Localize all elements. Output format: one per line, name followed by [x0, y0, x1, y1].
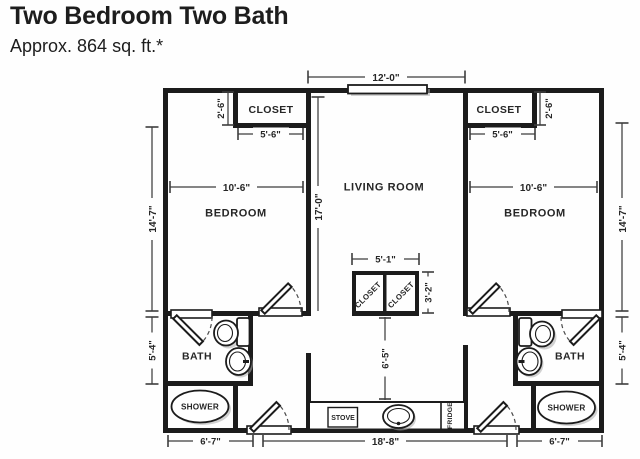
dim-closet-left-width: 5'-6" — [238, 128, 303, 141]
dim-living-room-depth: 17'-0" — [312, 97, 325, 311]
living-room-label: LIVING ROOM — [344, 182, 425, 194]
faucet-dot — [397, 422, 401, 426]
dim-closet-left-depth: 2'-6" — [216, 92, 234, 125]
svg-text:10'-6": 10'-6" — [223, 183, 250, 194]
sink-right — [517, 348, 544, 378]
svg-text:18'-8": 18'-8" — [372, 437, 399, 448]
svg-text:14'-7": 14'-7" — [618, 205, 629, 232]
entry-door-right — [474, 402, 519, 434]
svg-text:3'-2": 3'-2" — [424, 282, 435, 303]
entry-door-left — [247, 402, 291, 434]
bath-right-door — [561, 310, 602, 345]
closet-left-label: CLOSET — [249, 104, 294, 116]
toilet-right — [519, 318, 557, 350]
svg-text:5'-6": 5'-6" — [492, 130, 513, 141]
svg-text:6'-5": 6'-5" — [381, 348, 392, 369]
dim-closet-right-width: 5'-6" — [470, 128, 535, 141]
dim-bedroom-left-width: 10'-6" — [170, 181, 303, 194]
svg-text:17'-0": 17'-0" — [314, 193, 325, 220]
shower-left-label: SHOWER — [181, 403, 219, 412]
dim-bath-right-width: 6'-7" — [517, 435, 602, 448]
bath-left-label: BATH — [182, 351, 212, 363]
stove-label: STOVE — [331, 415, 355, 422]
fridge-label: FRIDGE — [447, 402, 454, 429]
dim-hall-closet-width: 5'-1" — [352, 253, 419, 266]
dim-bedroom-right-depth: 14'-7" — [616, 123, 629, 311]
svg-text:2'-6": 2'-6" — [544, 98, 555, 119]
floor-plan-drawing: 12'-0" 2'-6" 2'-6" 5'-6" 5'- — [0, 0, 640, 459]
hall-closet-left-label: CLOSET — [353, 280, 383, 310]
dim-kitchen-span-width: 18'-8" — [263, 435, 507, 448]
bedroom-left-door — [259, 283, 302, 316]
dim-bath-right-depth: 5'-4" — [616, 317, 629, 384]
svg-text:5'-6": 5'-6" — [260, 130, 281, 141]
bedroom-right-label: BEDROOM — [504, 208, 566, 220]
svg-text:10'-6": 10'-6" — [520, 183, 547, 194]
dim-bedroom-right-width: 10'-6" — [470, 181, 597, 194]
dim-closet-right-depth: 2'-6" — [534, 92, 555, 125]
svg-text:5'-4": 5'-4" — [148, 340, 159, 361]
svg-text:6'-7": 6'-7" — [549, 437, 570, 448]
bath-left-door — [171, 310, 212, 345]
bedroom-right-door — [467, 283, 510, 316]
dim-bath-left-depth: 5'-4" — [146, 317, 159, 384]
toilet-left — [214, 318, 250, 349]
bedroom-left-label: BEDROOM — [205, 208, 267, 220]
svg-text:12'-0": 12'-0" — [372, 73, 399, 84]
dim-bedroom-left-depth: 14'-7" — [146, 127, 159, 311]
dim-living-room-width: 12'-0" — [308, 71, 465, 84]
hall-closet-right-label: CLOSET — [386, 280, 416, 310]
living-room-window — [348, 85, 430, 96]
shower-right-label: SHOWER — [547, 404, 585, 413]
svg-text:5'-1": 5'-1" — [375, 255, 396, 266]
dim-hall-depth: 6'-5" — [379, 317, 392, 400]
svg-text:2'-6": 2'-6" — [216, 98, 227, 119]
closet-right-label: CLOSET — [477, 104, 522, 116]
dim-bath-left-width: 6'-7" — [168, 435, 253, 448]
bath-right-label: BATH — [555, 351, 585, 363]
svg-text:14'-7": 14'-7" — [148, 205, 159, 232]
floor-plan-page: Two Bedroom Two Bath Approx. 864 sq. ft.… — [0, 0, 640, 459]
dim-hall-closet-depth: 3'-2" — [422, 272, 435, 313]
svg-text:6'-7": 6'-7" — [200, 437, 221, 448]
svg-text:5'-4": 5'-4" — [618, 340, 629, 361]
